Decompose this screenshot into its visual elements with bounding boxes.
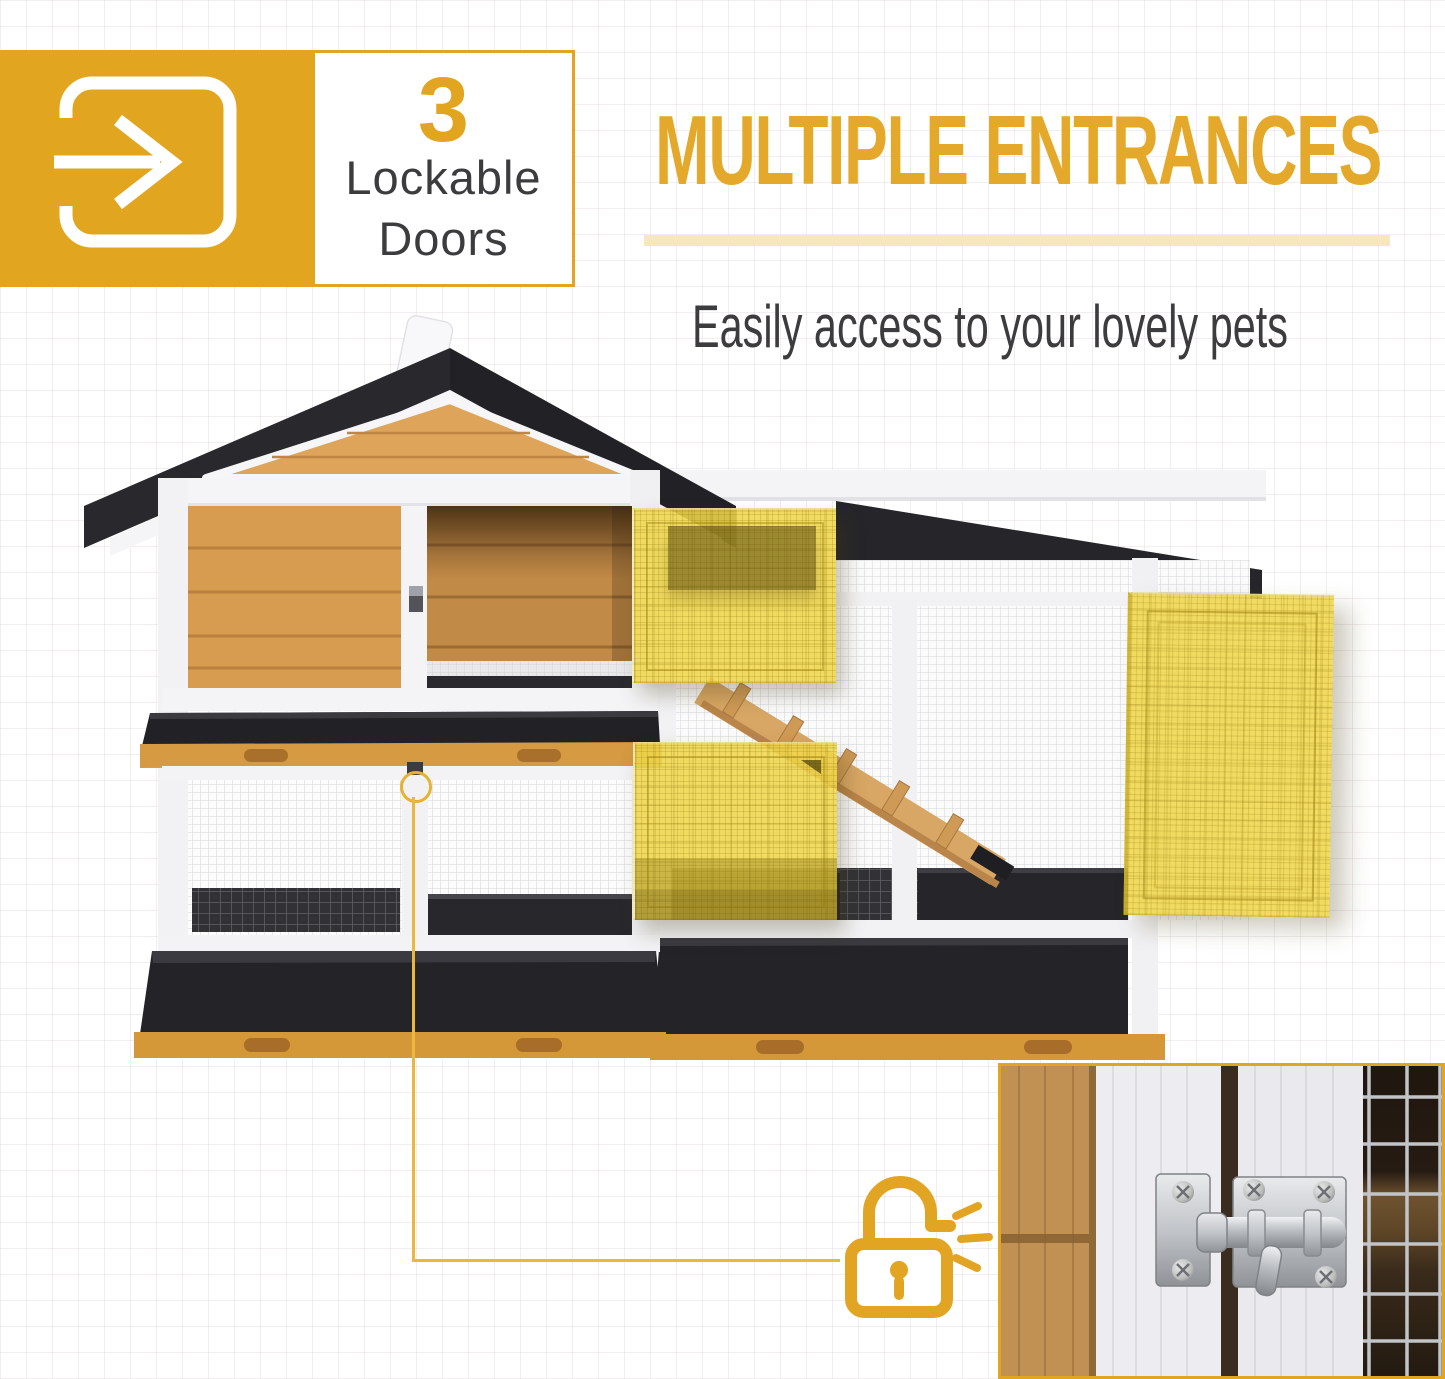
click-sparkle-marks: [956, 1206, 989, 1268]
connector-line-horizontal: [412, 1259, 840, 1262]
latch-closeup-graphic: [1001, 1066, 1442, 1376]
wood-sliding-door: [188, 506, 401, 688]
highlighted-door-top: [632, 508, 836, 683]
connector-line-vertical: [412, 797, 415, 1261]
unlocked-padlock-icon: [840, 1170, 1000, 1330]
upper-level: [188, 506, 632, 688]
latch-circle-highlight: [400, 771, 432, 803]
house-pullout-tray: [134, 951, 666, 1058]
highlighted-door-bottom: [633, 742, 837, 920]
slide-bolt-latch-photo: [998, 1063, 1445, 1379]
house-section: [84, 314, 736, 1058]
infographic-canvas: 3 Lockable Doors MULTIPLE ENTRANCES Easi…: [0, 0, 1445, 1379]
run-center-post: [892, 600, 917, 920]
run-pullout-tray: [650, 938, 1165, 1060]
slide-bolt-latch: [1156, 1174, 1346, 1297]
latch-mark: [801, 760, 821, 774]
upper-tray: [140, 711, 662, 768]
highlighted-door-open-right: [1123, 592, 1333, 918]
